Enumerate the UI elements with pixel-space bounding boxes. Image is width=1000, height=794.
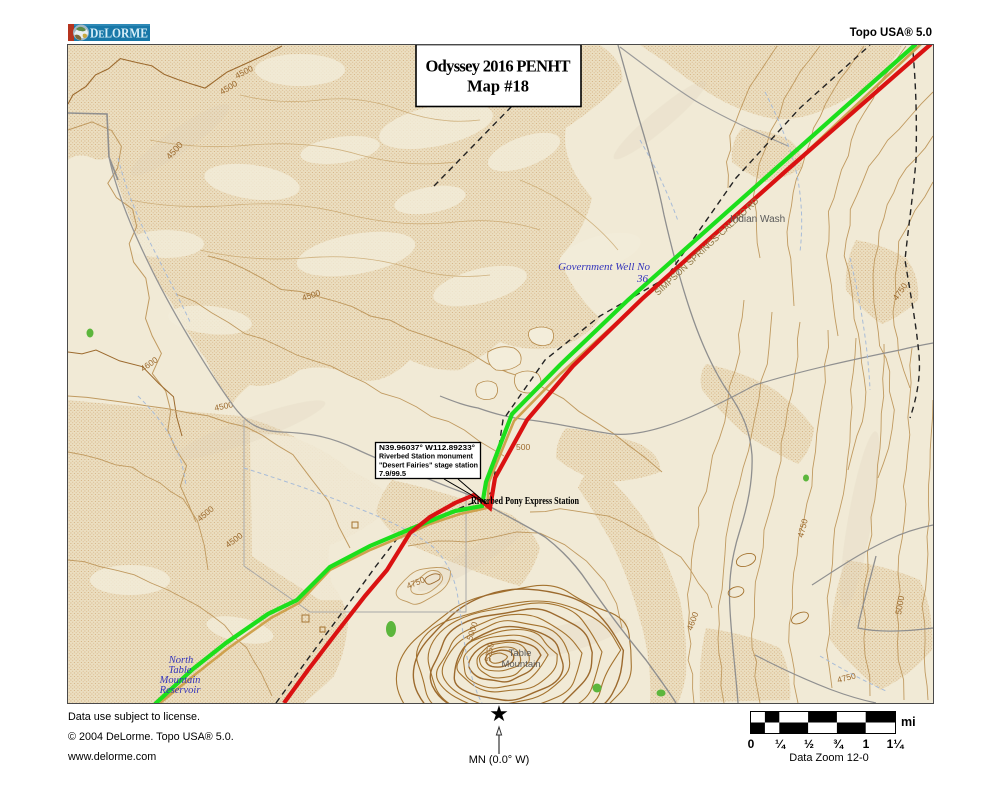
svg-text:Reservoir: Reservoir <box>159 685 202 696</box>
svg-text:Odyssey 2016 PENHT: Odyssey 2016 PENHT <box>426 57 571 76</box>
svg-text:7.9/99.5: 7.9/99.5 <box>379 469 406 478</box>
svg-text:"Desert Fairies" stage station: "Desert Fairies" stage station <box>379 460 478 469</box>
svg-text:Riverbed Station monument: Riverbed Station monument <box>379 452 473 461</box>
svg-text:Map #18: Map #18 <box>467 77 529 96</box>
svg-text:Table: Table <box>509 648 532 659</box>
svg-text:36: 36 <box>636 273 649 285</box>
svg-text:Government Well No: Government Well No <box>558 261 650 273</box>
svg-text:500: 500 <box>516 442 530 452</box>
svg-text:Indian Wash: Indian Wash <box>730 214 785 225</box>
svg-text:Riverbed Pony Express Station: Riverbed Pony Express Station <box>471 496 579 507</box>
svg-text:Mountain: Mountain <box>501 659 540 670</box>
svg-text:N39.96037° W112.89233°: N39.96037° W112.89233° <box>379 443 475 452</box>
